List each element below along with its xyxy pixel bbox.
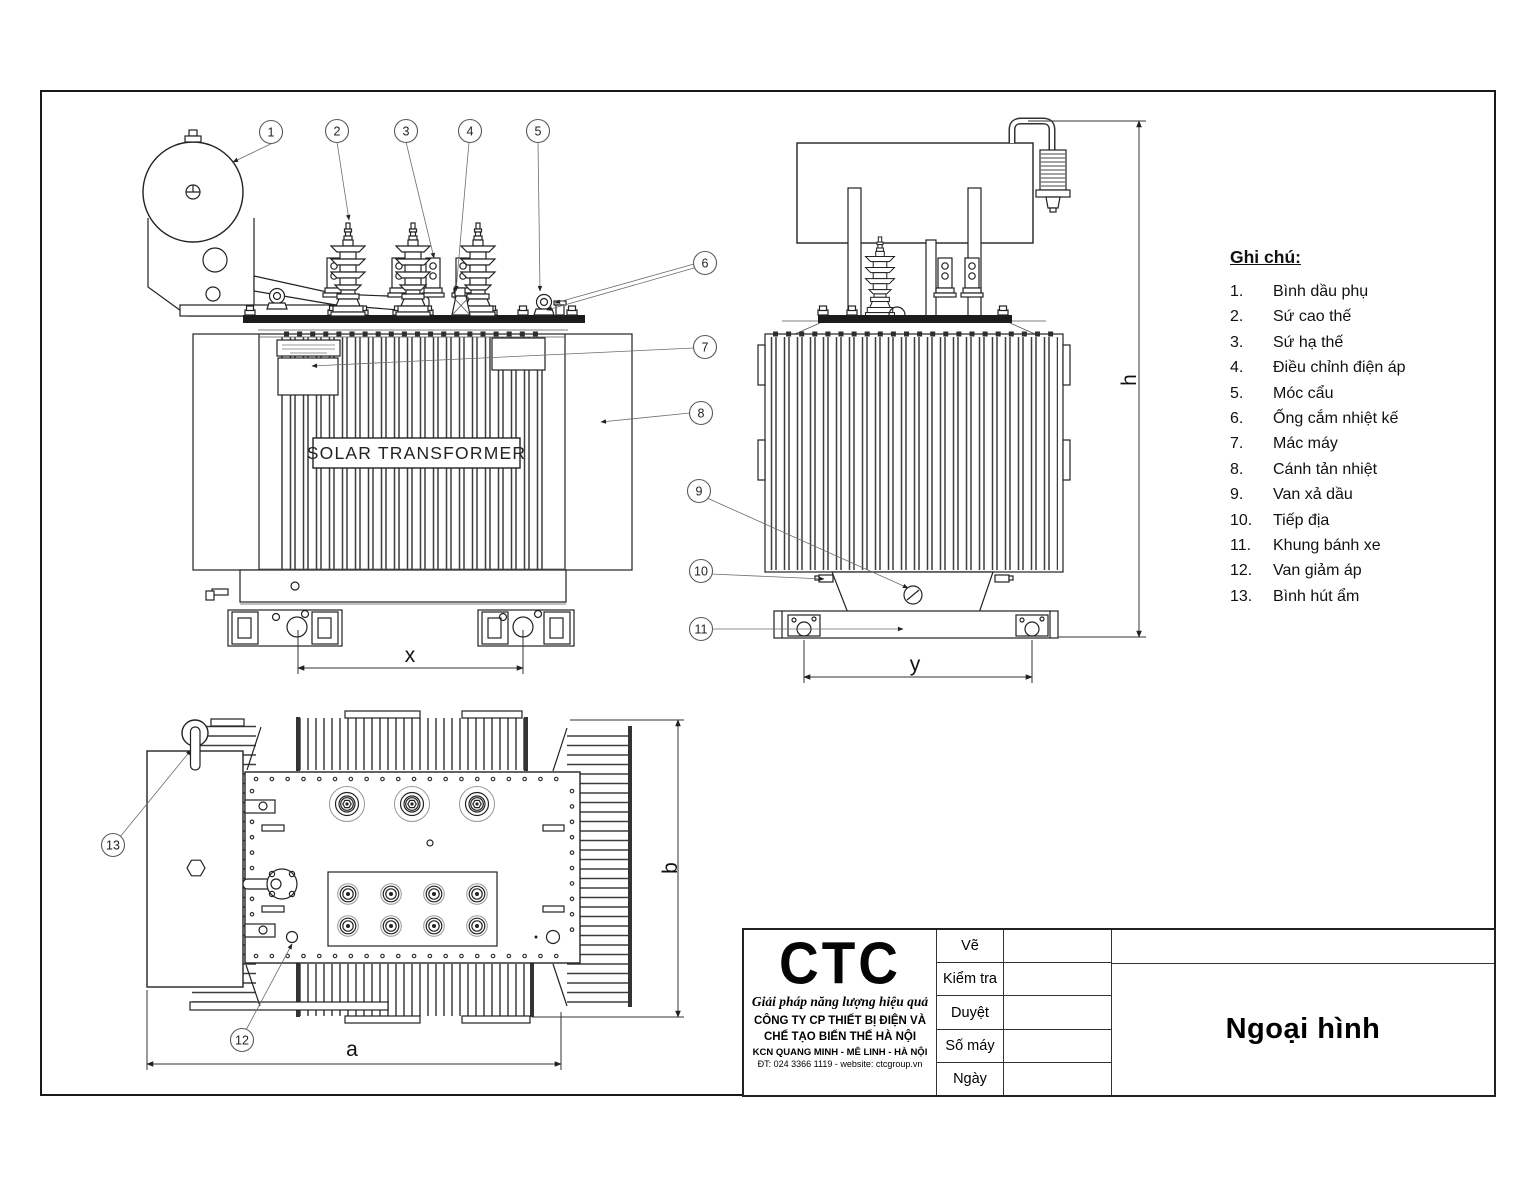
callout-2: 2 xyxy=(326,120,349,143)
radiator-top-plan xyxy=(211,711,528,771)
svg-text:10: 10 xyxy=(694,565,708,579)
svg-text:12: 12 xyxy=(235,1034,249,1048)
tank-label: SOLAR TRANSFORMER xyxy=(307,438,526,468)
side-view xyxy=(758,121,1070,638)
ground-terminal-right xyxy=(995,575,1009,582)
table-row: Duyệt xyxy=(937,996,1112,1029)
callout-9: 9 xyxy=(688,480,711,503)
callout-11: 11 xyxy=(690,618,713,641)
callout-8: 8 xyxy=(690,402,713,425)
callout-7: 7 xyxy=(694,336,717,359)
row-value xyxy=(1004,930,1112,962)
bushing-post xyxy=(848,188,861,318)
radiator-fins-side xyxy=(758,334,1070,572)
svg-text:1: 1 xyxy=(268,126,275,140)
legend-item: 10.Tiếp địa xyxy=(1230,508,1460,533)
callout-13: 13 xyxy=(102,834,125,857)
tank-bottom xyxy=(815,572,1013,613)
svg-text:3: 3 xyxy=(403,125,410,139)
legend-item: 1.Bình dầu phụ xyxy=(1230,279,1460,304)
callout-3: 3 xyxy=(395,120,418,143)
approval-table: Vẽ Kiểm tra Duyệt Số máy Ngày xyxy=(937,930,1112,1095)
table-row: Ngày xyxy=(937,1063,1112,1095)
svg-text:11: 11 xyxy=(695,623,708,637)
legend-title: Ghi chú: xyxy=(1230,247,1460,268)
title-top-strip xyxy=(1112,930,1494,964)
table-row: Kiểm tra xyxy=(937,963,1112,996)
svg-text:4: 4 xyxy=(467,125,474,139)
drawing-title: Ngoại hình xyxy=(1112,964,1494,1095)
row-value xyxy=(1004,1063,1112,1095)
legend-item: 13.Bình hút ẩm xyxy=(1230,584,1460,609)
svg-text:8: 8 xyxy=(698,407,705,421)
legend-item: 8.Cánh tản nhiệt xyxy=(1230,457,1460,482)
company-name: CÔNG TY CP THIẾT BỊ ĐIỆN VÀ CHẾ TẠO BIẾN… xyxy=(744,1014,936,1045)
title-block: CTC Giải pháp năng lượng hiệu quả CÔNG T… xyxy=(742,928,1496,1097)
company-logo: CTC xyxy=(744,934,936,993)
legend-item: 7.Mác máy xyxy=(1230,431,1460,456)
table-row: Số máy xyxy=(937,1030,1112,1063)
row-value xyxy=(1004,963,1112,995)
dim-a: a xyxy=(346,1038,358,1061)
callout-1: 1 xyxy=(260,121,283,144)
row-value xyxy=(1004,996,1112,1028)
conservator-tank xyxy=(143,130,429,316)
callout-12: 12 xyxy=(231,1029,254,1052)
callout-5: 5 xyxy=(527,120,550,143)
wheel-frame xyxy=(774,611,1058,638)
hv-bushings xyxy=(323,223,495,316)
legend-item: 9.Van xả dầu xyxy=(1230,482,1460,507)
conservator-side xyxy=(797,143,1033,243)
callout-10: 10 xyxy=(690,560,713,583)
table-row: Vẽ xyxy=(937,930,1112,963)
svg-text:5: 5 xyxy=(535,125,542,139)
dim-b: b xyxy=(659,862,682,874)
side-deck-plate xyxy=(818,315,1012,323)
bushing-post xyxy=(968,188,981,318)
legend-item: 3.Sứ hạ thế xyxy=(1230,330,1460,355)
drawing-canvas: SOLAR TRANSFORMER xyxy=(0,0,1536,1187)
svg-text:13: 13 xyxy=(106,839,120,853)
lifting-hook-right xyxy=(534,295,554,316)
legend-item: 4.Điều chỉnh điện áp xyxy=(1230,355,1460,380)
nameplate xyxy=(277,340,340,395)
svg-text:2: 2 xyxy=(334,125,341,139)
svg-text:7: 7 xyxy=(702,341,709,355)
front-view: SOLAR TRANSFORMER xyxy=(143,130,632,646)
svg-text:9: 9 xyxy=(696,485,703,499)
legend-item: 5.Móc cẩu xyxy=(1230,381,1460,406)
dim-y: y xyxy=(910,653,921,676)
legend: Ghi chú: 1.Bình dầu phụ 2.Sứ cao thế 3.S… xyxy=(1230,247,1460,609)
company-address: KCN QUANG MINH - MÊ LINH - HÀ NỘI xyxy=(744,1047,936,1058)
svg-text:6: 6 xyxy=(702,257,709,271)
row-value xyxy=(1004,1030,1112,1062)
side-panel xyxy=(492,338,545,370)
top-view xyxy=(147,711,632,1023)
legend-item: 11.Khung bánh xe xyxy=(1230,533,1460,558)
callout-4: 4 xyxy=(459,120,482,143)
dim-h: h xyxy=(1118,374,1141,386)
company-cell: CTC Giải pháp năng lượng hiệu quả CÔNG T… xyxy=(744,930,937,1095)
dim-x: x xyxy=(405,644,416,667)
legend-item: 6.Ống cắm nhiệt kế xyxy=(1230,406,1460,431)
legend-item: 12.Van giảm áp xyxy=(1230,558,1460,583)
tank-label-text: SOLAR TRANSFORMER xyxy=(307,443,526,463)
company-contact: ĐT: 024 3366 1119 - website: ctcgroup.vn xyxy=(744,1059,936,1069)
legend-item: 2.Sứ cao thế xyxy=(1230,304,1460,329)
base-frame-front xyxy=(206,570,574,646)
callout-6: 6 xyxy=(694,252,717,275)
drawing-title-cell: Ngoại hình xyxy=(1112,930,1494,1095)
